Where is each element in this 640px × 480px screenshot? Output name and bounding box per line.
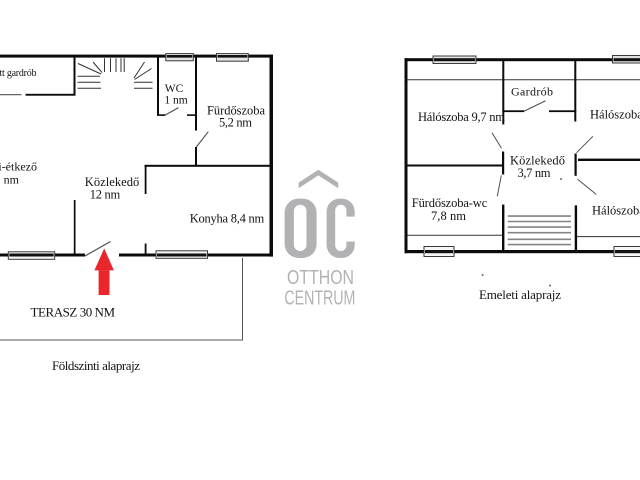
- svg-text:Fürdőszoba-wc: Fürdőszoba-wc: [412, 196, 488, 210]
- svg-text:nm: nm: [4, 173, 20, 187]
- svg-text:Hálószoba 9,2 nm: Hálószoba 9,2 nm: [590, 108, 640, 122]
- svg-text:Emeleti alaprajz: Emeleti alaprajz: [479, 287, 561, 302]
- svg-text:tt gardrób: tt gardrób: [0, 68, 37, 79]
- svg-text:3,7 nm: 3,7 nm: [518, 166, 551, 180]
- svg-text:WC: WC: [165, 83, 184, 95]
- svg-text:Konyha 8,4 nm: Konyha 8,4 nm: [190, 212, 265, 226]
- svg-text:Hálószoba 9,2 nm: Hálószoba 9,2 nm: [592, 204, 640, 218]
- svg-text:7,8 nm: 7,8 nm: [431, 209, 466, 223]
- svg-text:TERASZ 30 NM: TERASZ 30 NM: [31, 305, 116, 320]
- svg-text:1 nm: 1 nm: [164, 95, 187, 107]
- svg-text:Hálószoba 9,7 nm: Hálószoba 9,7 nm: [418, 110, 505, 124]
- svg-text:5,2 nm: 5,2 nm: [219, 116, 252, 130]
- svg-text:CENTRUM: CENTRUM: [284, 287, 355, 310]
- svg-text:12 nm: 12 nm: [90, 188, 121, 202]
- svg-text:Nappali-étkező: Nappali-étkező: [0, 160, 37, 174]
- svg-text:Gardrób: Gardrób: [511, 85, 553, 99]
- svg-text:Földszinti alaprajz: Földszinti alaprajz: [52, 358, 140, 373]
